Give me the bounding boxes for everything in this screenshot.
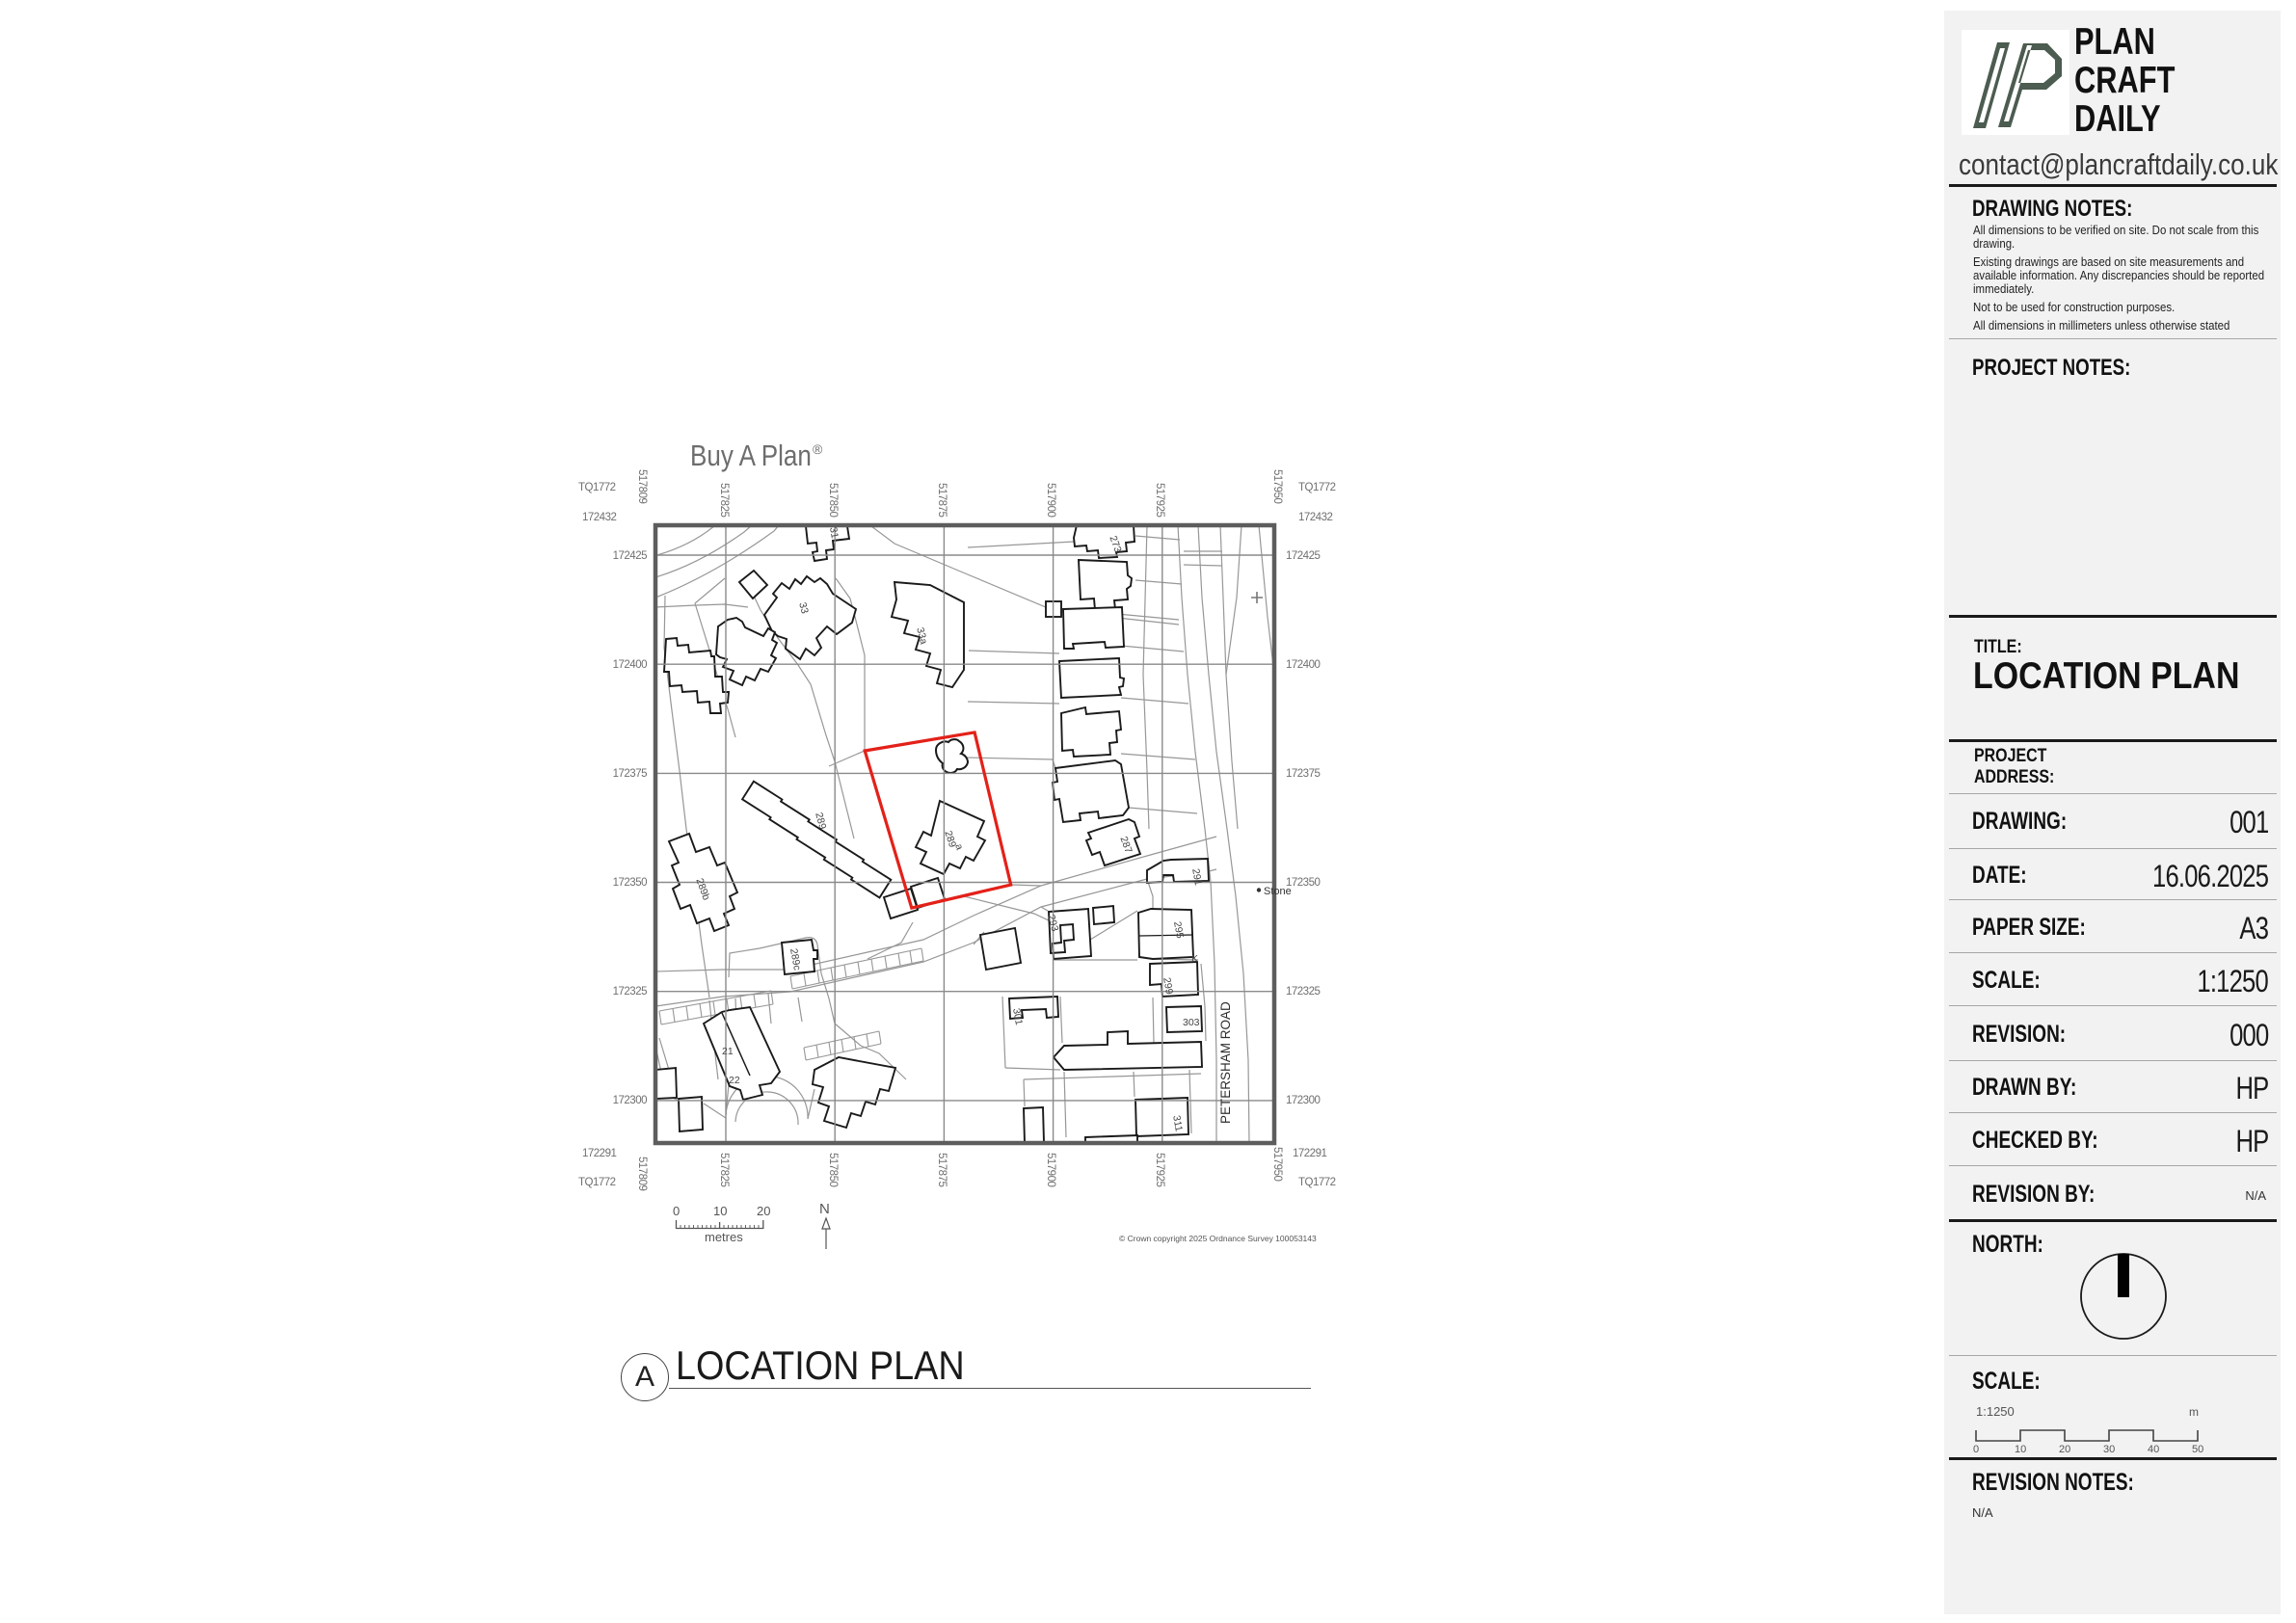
svg-text:172325: 172325	[1286, 986, 1320, 998]
svg-text:517900: 517900	[1045, 483, 1056, 517]
svg-text:K: K	[1191, 953, 1198, 965]
svg-text:517825: 517825	[718, 483, 730, 517]
svg-text:303: 303	[1183, 1017, 1200, 1028]
svg-text:20: 20	[2059, 1444, 2070, 1452]
svg-text:517950: 517950	[1271, 1147, 1283, 1181]
svg-text:40: 40	[2148, 1444, 2159, 1452]
svg-text:TQ1772: TQ1772	[1298, 1177, 1336, 1188]
svg-text:TQ1772: TQ1772	[578, 482, 616, 493]
svg-text:172400: 172400	[613, 659, 647, 671]
svg-text:172375: 172375	[1286, 768, 1320, 780]
svg-text:172375: 172375	[613, 768, 647, 780]
svg-text:172325: 172325	[613, 986, 647, 998]
svg-text:0: 0	[673, 1204, 680, 1218]
svg-text:517809: 517809	[636, 1157, 648, 1190]
svg-text:172300: 172300	[613, 1095, 647, 1106]
svg-text:291: 291	[1189, 867, 1204, 886]
svg-text:517875: 517875	[936, 483, 948, 517]
svg-text:© Crown copyright 2025 Ordnanc: © Crown copyright 2025 Ordnance Survey 1…	[1119, 1234, 1317, 1243]
svg-text:1:1250: 1:1250	[1976, 1404, 2015, 1419]
svg-text:172400: 172400	[1286, 659, 1320, 671]
svg-text:®: ®	[813, 441, 823, 457]
svg-text:301: 301	[1010, 1007, 1025, 1025]
svg-text:10: 10	[713, 1204, 727, 1218]
svg-text:172291: 172291	[582, 1148, 616, 1159]
svg-text:517825: 517825	[718, 1153, 730, 1186]
svg-text:0: 0	[1973, 1444, 1979, 1452]
svg-text:172350: 172350	[613, 877, 647, 889]
svg-text:517900: 517900	[1045, 1153, 1056, 1186]
svg-text:21: 21	[722, 1046, 734, 1057]
svg-text:Buy A Plan: Buy A Plan	[690, 439, 812, 473]
svg-text:TQ1772: TQ1772	[578, 1177, 616, 1188]
svg-text:m: m	[2189, 1405, 2199, 1419]
svg-text:172300: 172300	[1286, 1095, 1320, 1106]
svg-text:10: 10	[2015, 1444, 2026, 1452]
svg-text:172425: 172425	[1286, 550, 1320, 562]
svg-text:172291: 172291	[1293, 1148, 1326, 1159]
svg-text:50: 50	[2192, 1444, 2203, 1452]
svg-text:172425: 172425	[613, 550, 647, 562]
svg-text:517809: 517809	[636, 469, 648, 503]
svg-text:31: 31	[827, 526, 841, 540]
svg-text:PETERSHAM ROAD: PETERSHAM ROAD	[1218, 1001, 1233, 1124]
svg-text:517850: 517850	[827, 483, 839, 517]
svg-text:30: 30	[2103, 1444, 2115, 1452]
svg-text:517950: 517950	[1271, 469, 1283, 503]
svg-text:517850: 517850	[827, 1153, 839, 1186]
svg-text:metres: metres	[705, 1230, 743, 1244]
svg-text:N: N	[819, 1201, 830, 1217]
svg-text:20: 20	[757, 1204, 770, 1218]
svg-text:172432: 172432	[1298, 512, 1332, 523]
svg-text:TQ1772: TQ1772	[1298, 482, 1336, 493]
svg-text:172350: 172350	[1286, 877, 1320, 889]
svg-text:517925: 517925	[1154, 483, 1165, 517]
svg-text:517925: 517925	[1154, 1153, 1165, 1186]
svg-text:172432: 172432	[582, 512, 616, 523]
svg-text:517875: 517875	[936, 1153, 948, 1186]
svg-text:22: 22	[729, 1075, 740, 1086]
